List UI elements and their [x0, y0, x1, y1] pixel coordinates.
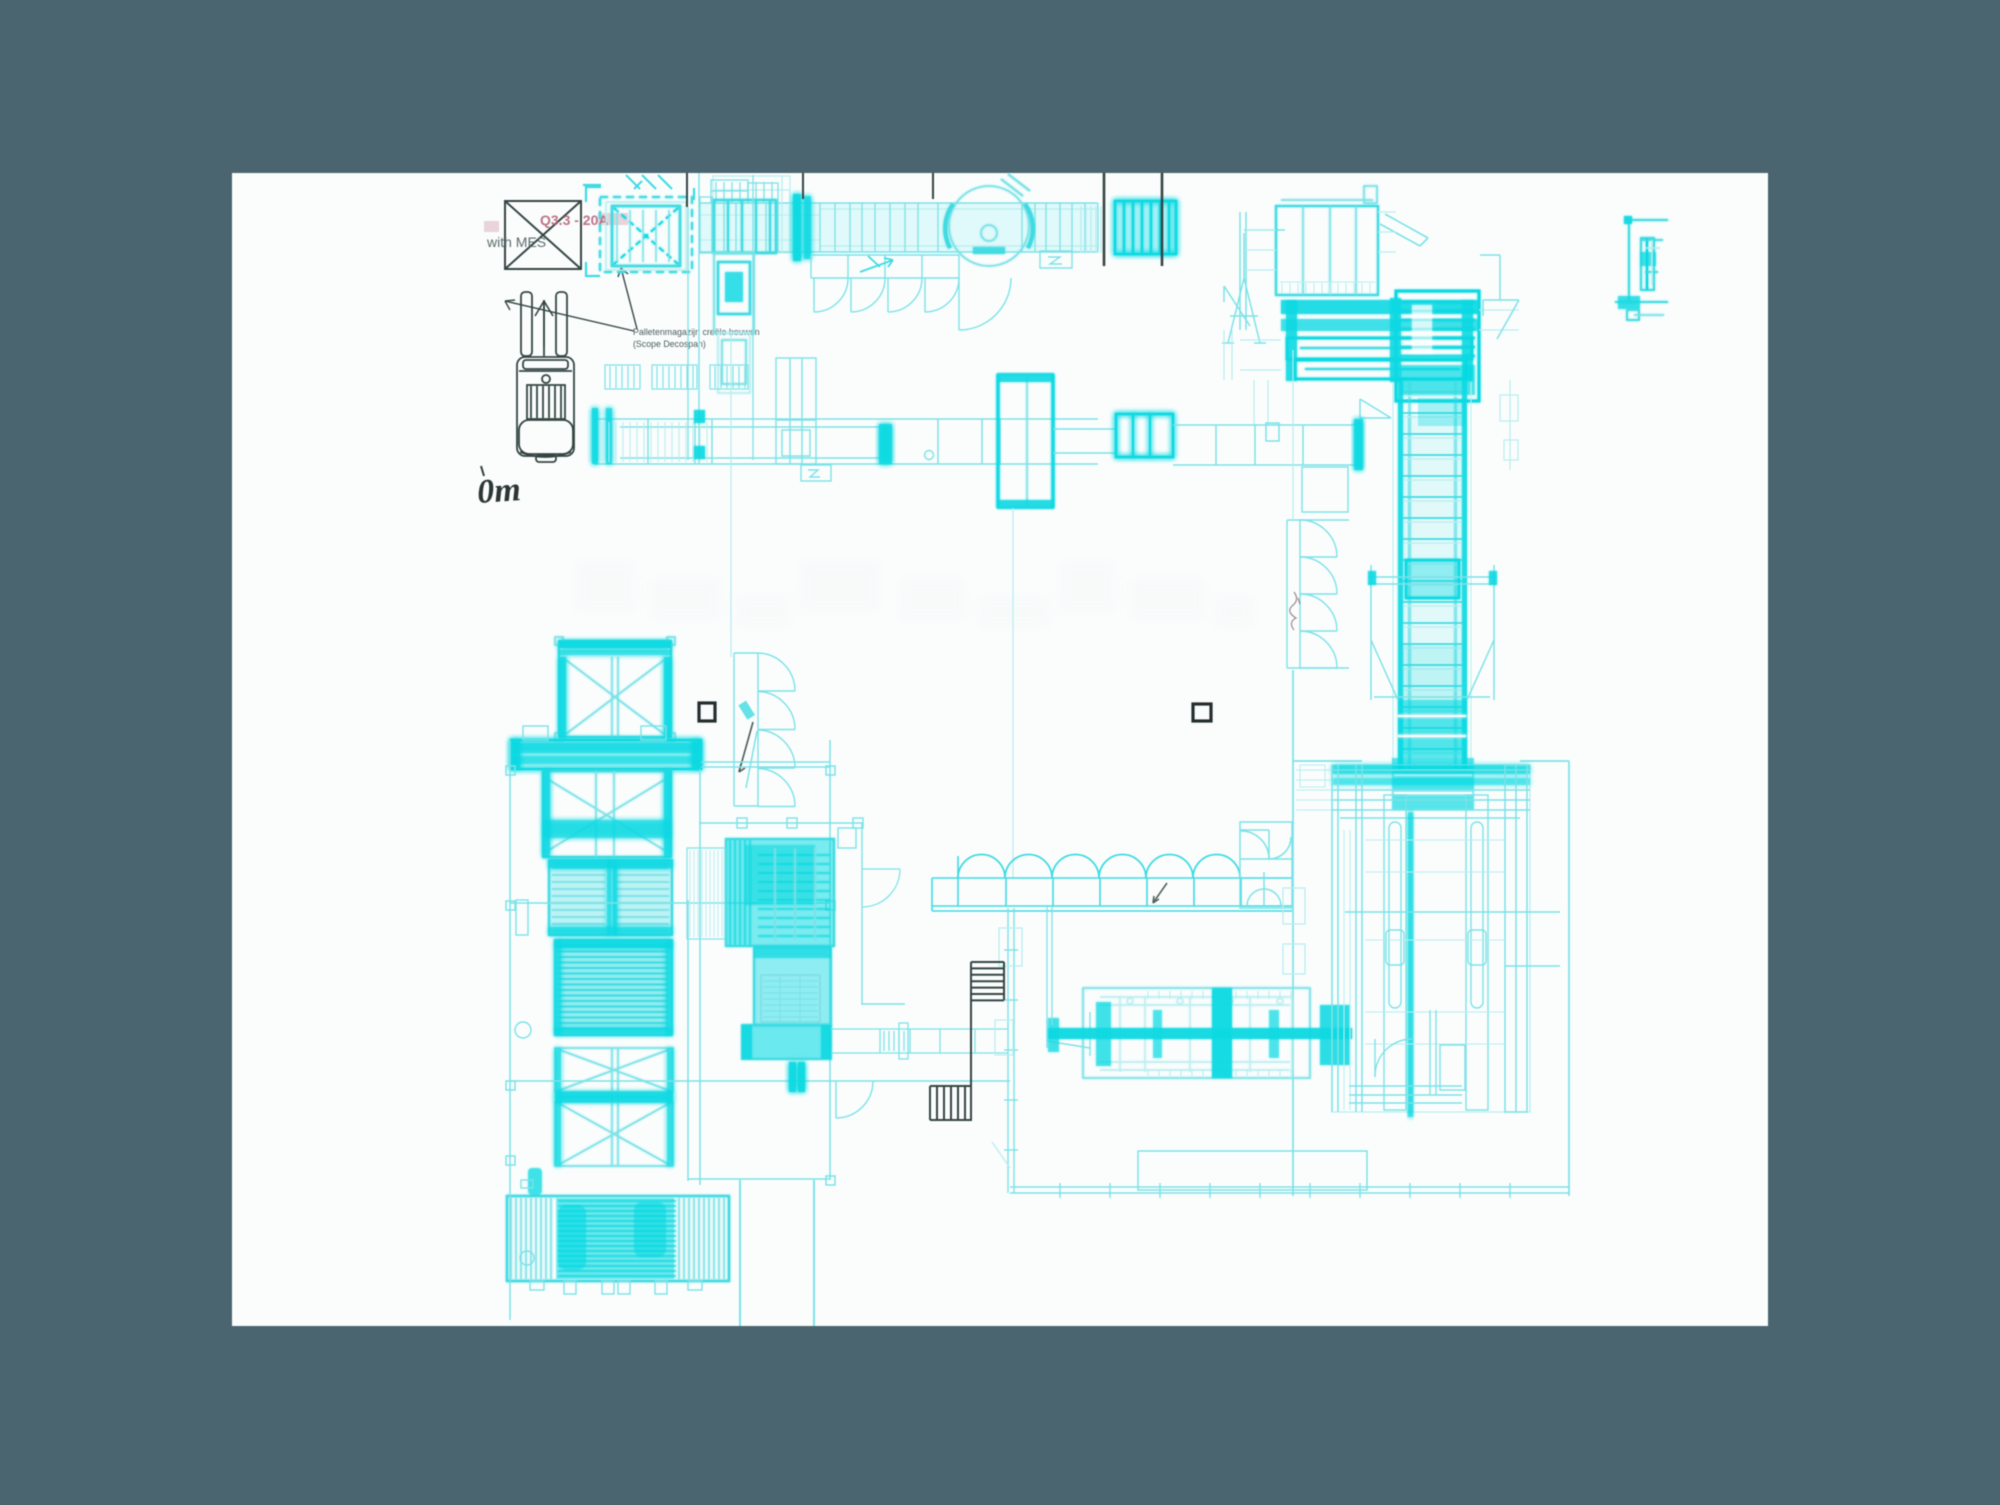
svg-text:with MES: with MES [486, 234, 546, 250]
svg-text:0m: 0m [476, 471, 522, 511]
svg-text:(Scope Decospan): (Scope Decospan) [633, 339, 706, 349]
svg-text:Palletenmagazijn creële bouwen: Palletenmagazijn creële bouwen [633, 327, 760, 337]
